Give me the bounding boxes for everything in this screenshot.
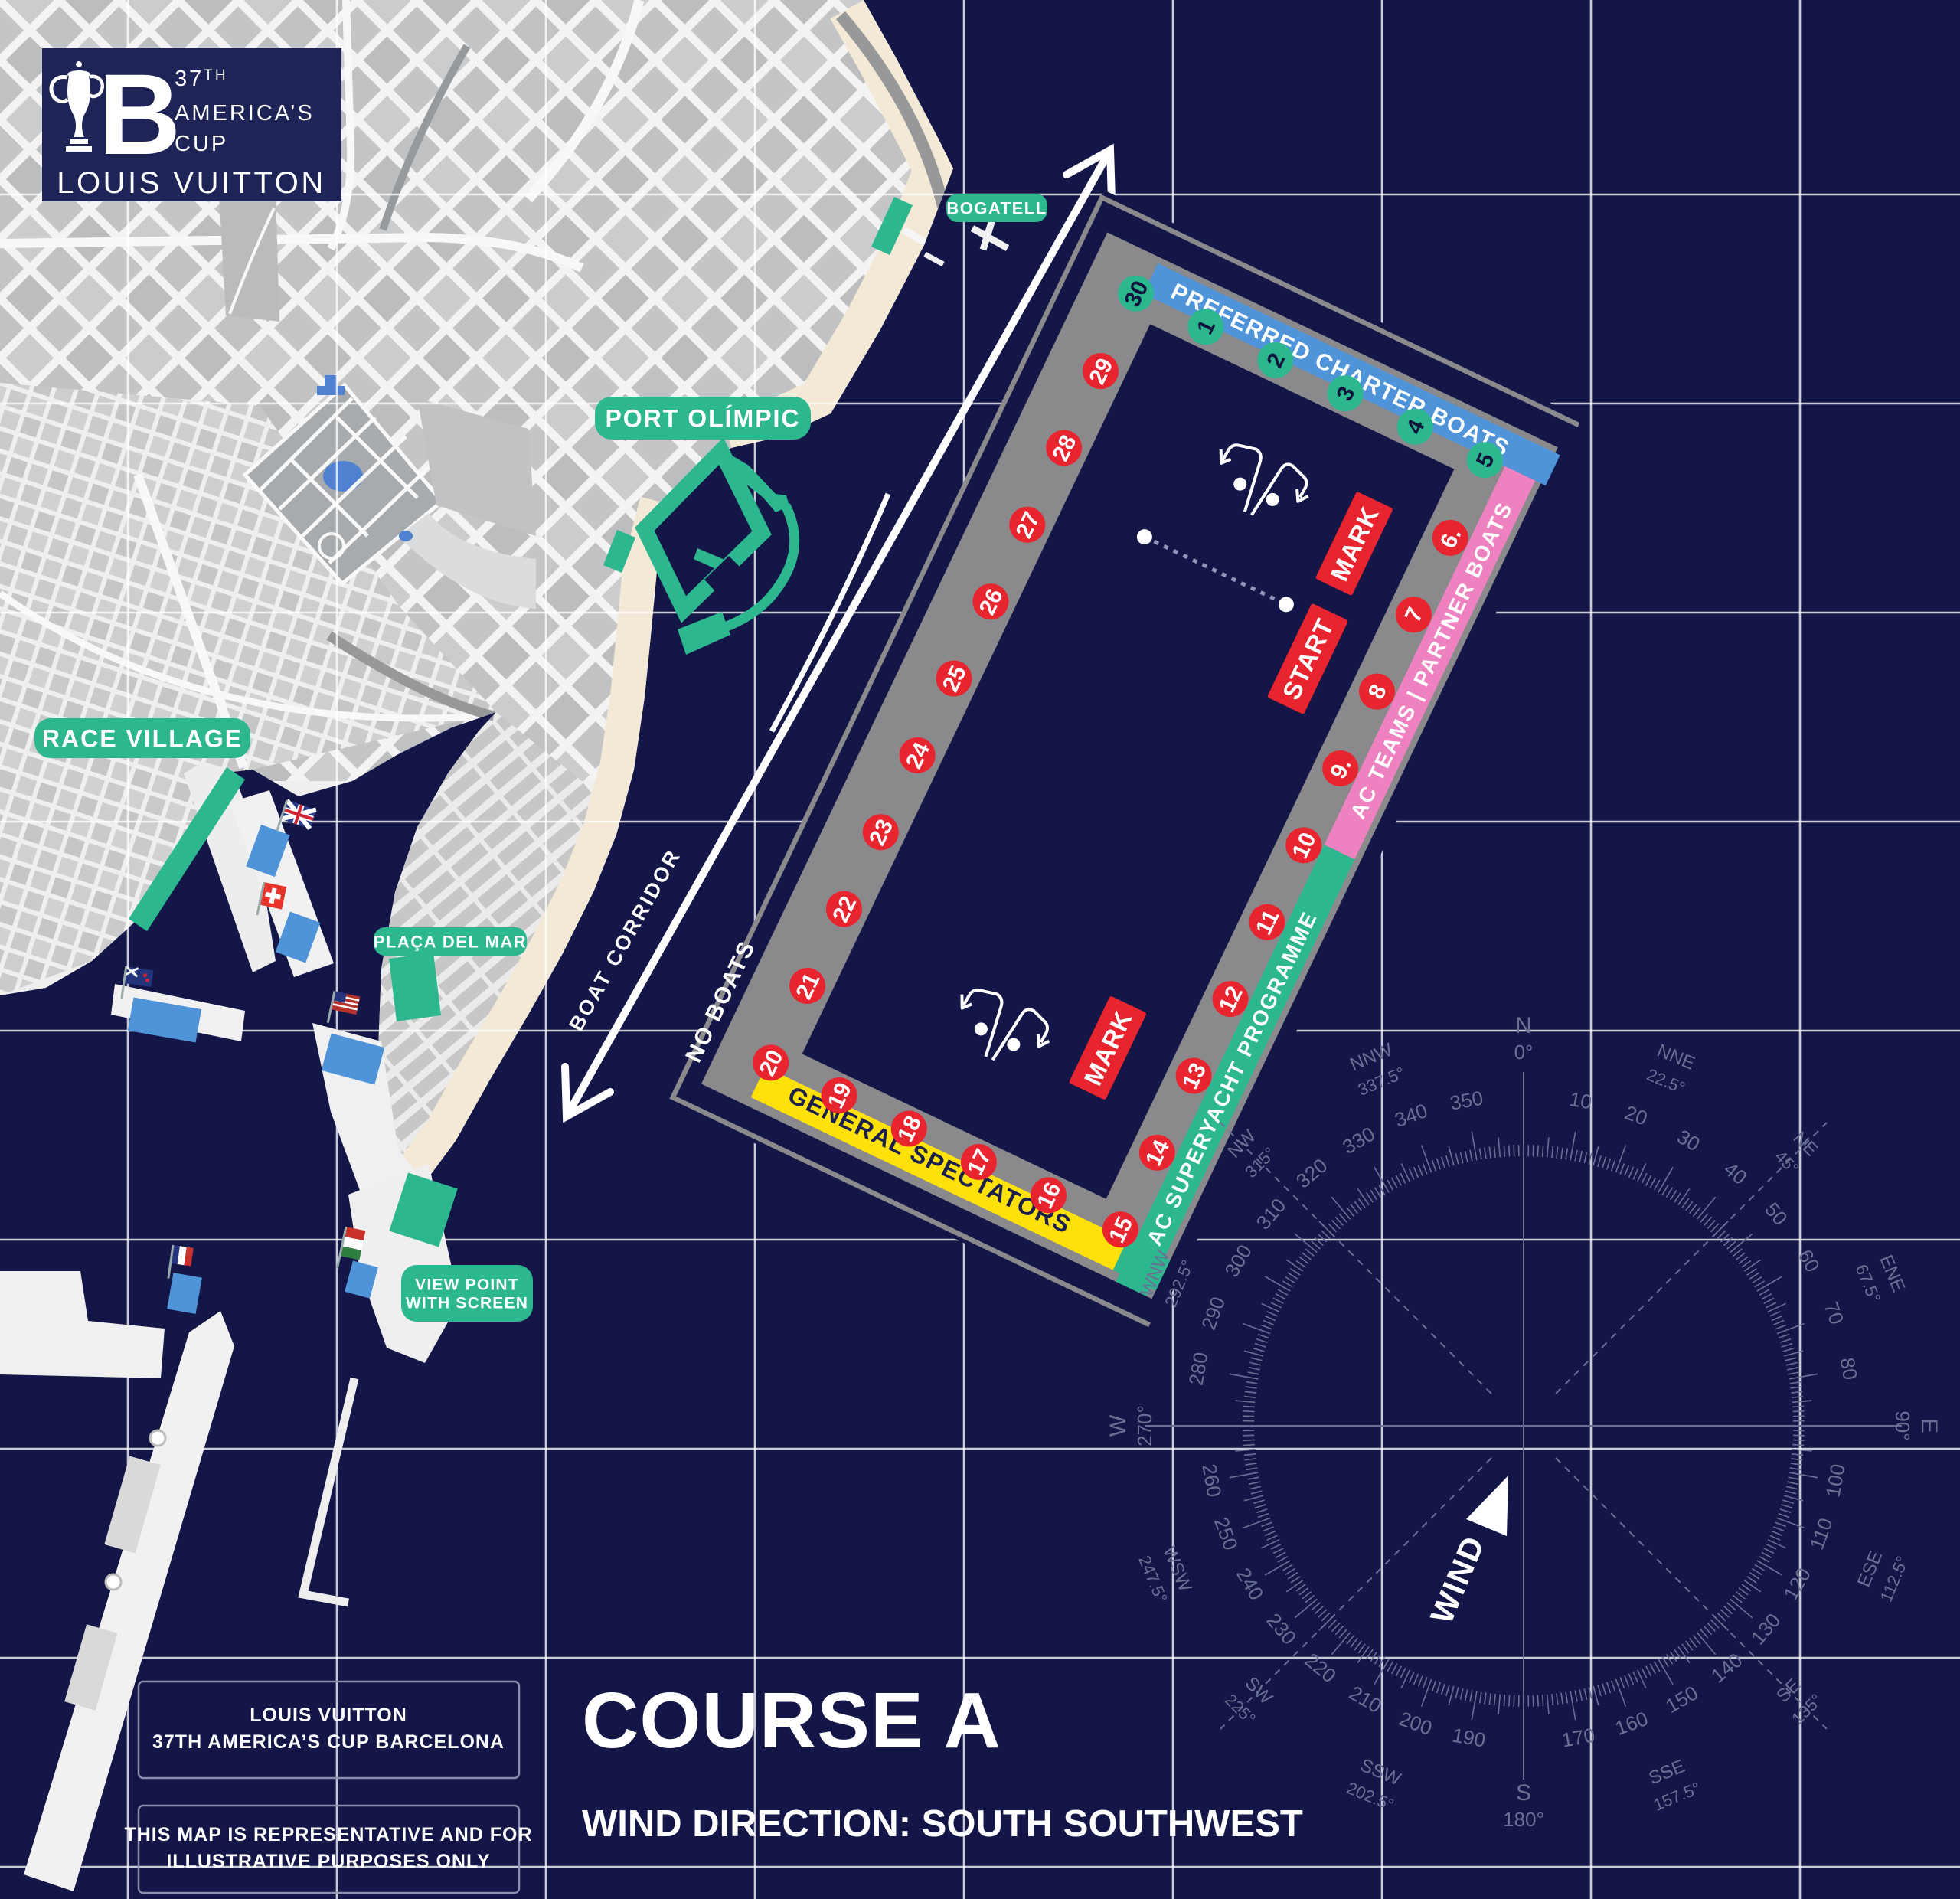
svg-text:LOUIS VUITTON: LOUIS VUITTON bbox=[250, 1705, 407, 1726]
svg-text:N: N bbox=[1515, 1013, 1532, 1038]
svg-text:CUP: CUP bbox=[175, 132, 228, 156]
svg-text:90°: 90° bbox=[1891, 1410, 1914, 1440]
svg-text:S: S bbox=[1516, 1780, 1531, 1806]
svg-text:E: E bbox=[1916, 1418, 1942, 1433]
svg-text:WIND DIRECTION: SOUTH SOUTHWES: WIND DIRECTION: SOUTH SOUTHWEST bbox=[582, 1803, 1303, 1845]
svg-text:80: 80 bbox=[1836, 1356, 1863, 1382]
svg-text:THIS MAP IS REPRESENTATIVE AND: THIS MAP IS REPRESENTATIVE AND FOR bbox=[124, 1824, 532, 1845]
svg-text:COURSE A: COURSE A bbox=[582, 1676, 1001, 1764]
svg-text:37TH AMERICA’S CUP BARCELONA: 37TH AMERICA’S CUP BARCELONA bbox=[152, 1731, 505, 1753]
svg-text:B: B bbox=[98, 50, 181, 178]
svg-text:AMERICA’S: AMERICA’S bbox=[175, 101, 315, 126]
svg-text:RACE VILLAGE: RACE VILLAGE bbox=[42, 725, 243, 753]
svg-text:PORT OLÍMPIC: PORT OLÍMPIC bbox=[605, 405, 800, 433]
svg-text:0°: 0° bbox=[1514, 1041, 1534, 1064]
svg-text:W: W bbox=[1106, 1414, 1131, 1437]
svg-text:10: 10 bbox=[1568, 1087, 1594, 1114]
svg-text:ILLUSTRATIVE PURPOSES ONLY: ILLUSTRATIVE PURPOSES ONLY bbox=[166, 1851, 490, 1872]
svg-text:PLAÇA DEL MAR: PLAÇA DEL MAR bbox=[374, 932, 527, 951]
svg-text:BOGATELL: BOGATELL bbox=[946, 198, 1047, 217]
svg-text:VIEW POINT: VIEW POINT bbox=[415, 1276, 519, 1294]
svg-text:WITH SCREEN: WITH SCREEN bbox=[406, 1295, 528, 1312]
svg-text:180°: 180° bbox=[1503, 1808, 1544, 1831]
svg-text:270°: 270° bbox=[1133, 1405, 1156, 1446]
svg-text:LOUIS VUITTON: LOUIS VUITTON bbox=[57, 166, 325, 200]
